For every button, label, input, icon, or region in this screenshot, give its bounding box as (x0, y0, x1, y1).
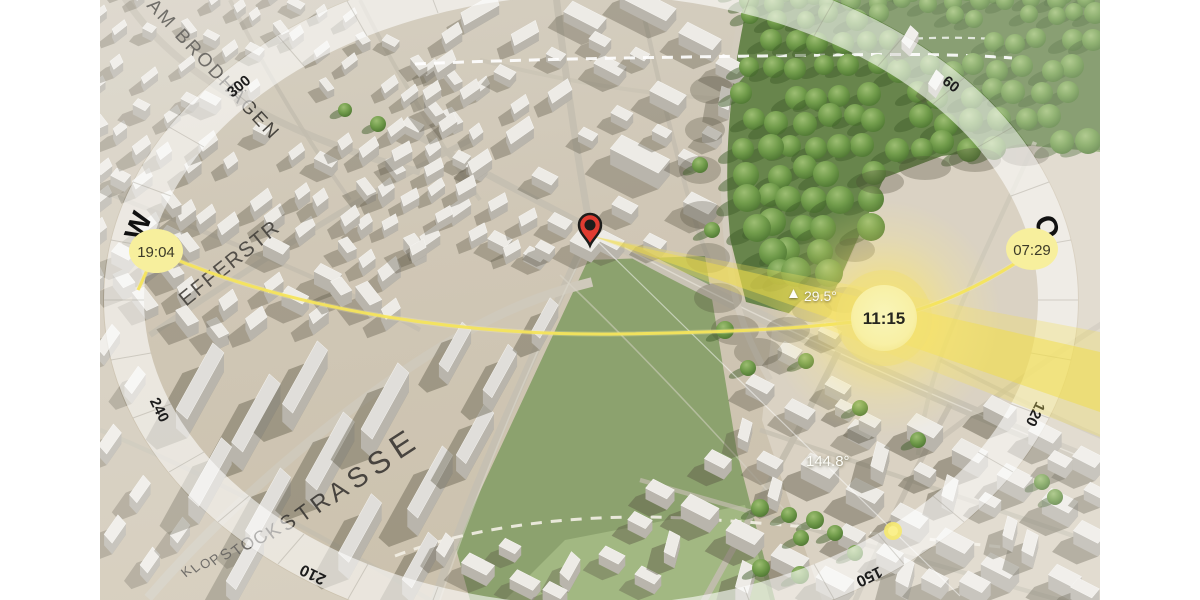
svg-text:07:29: 07:29 (1013, 242, 1051, 259)
svg-text:11:15: 11:15 (863, 309, 906, 328)
svg-text:29.5°: 29.5° (804, 288, 837, 304)
svg-text:144.8°: 144.8° (806, 453, 850, 470)
svg-text:19:04: 19:04 (137, 244, 175, 261)
